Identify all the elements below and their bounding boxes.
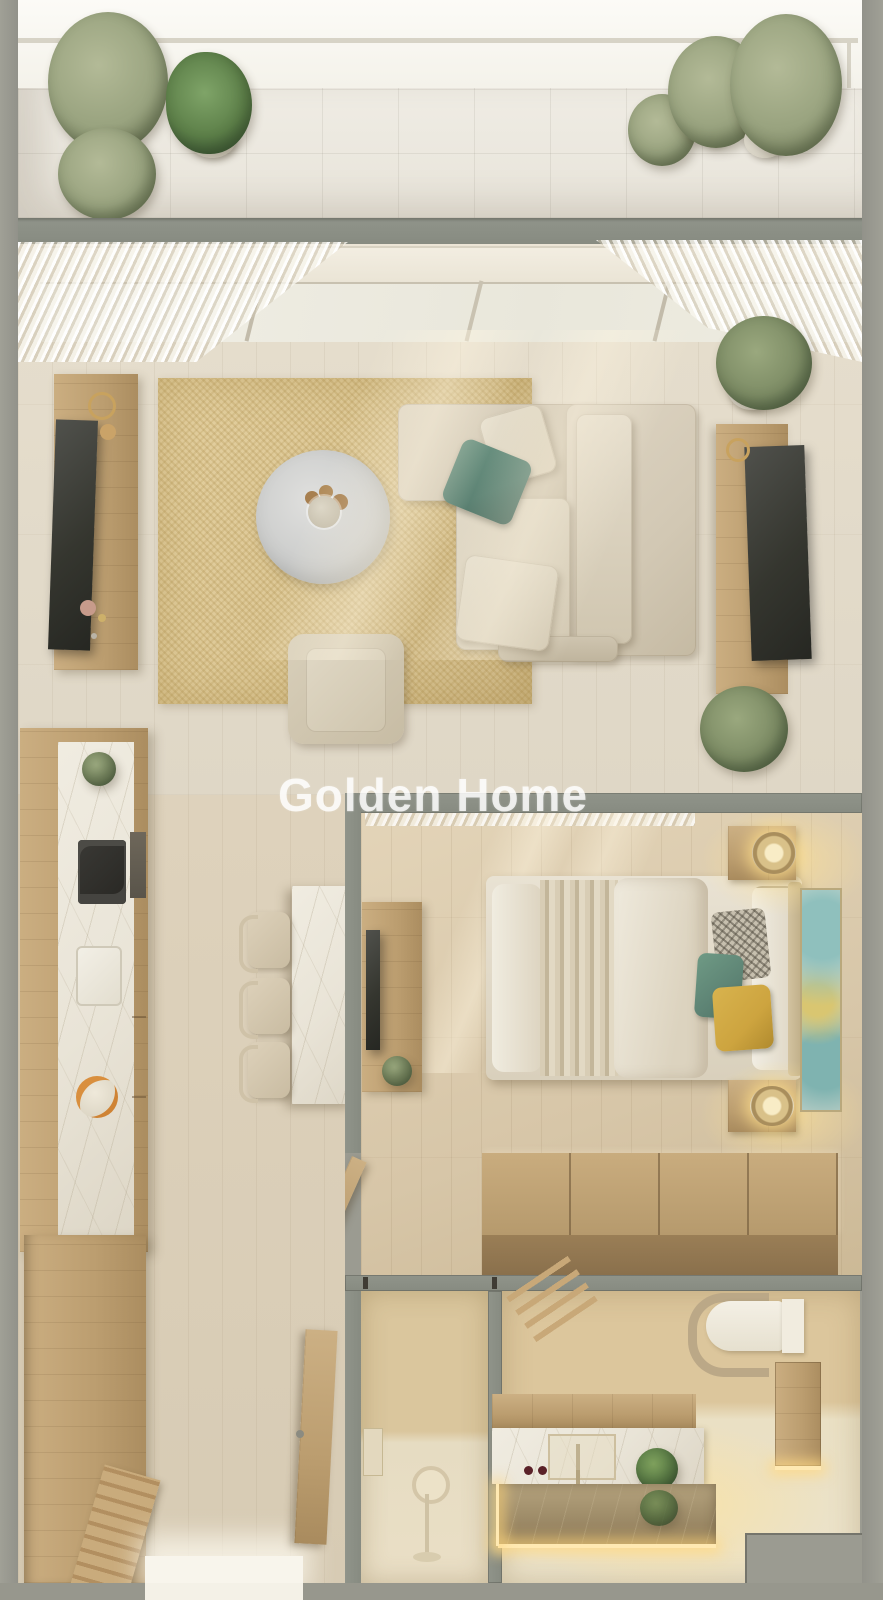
gold-decor [726, 438, 750, 462]
entry-threshold-light [145, 1583, 303, 1600]
watermark: Golden Home [278, 768, 588, 822]
door-jamb-mark [363, 1277, 368, 1289]
stool [248, 1042, 290, 1098]
led-strip [775, 1466, 821, 1470]
wall-art [800, 888, 842, 1112]
yellow-pillow [712, 984, 774, 1052]
sofa-seat-cushion [576, 414, 632, 644]
sofa-bottom-pillow [454, 554, 559, 652]
gold-decor [88, 392, 116, 420]
door-jamb-mark [492, 1277, 497, 1289]
led-strip [498, 1544, 716, 1548]
kitchen-herb-icon [82, 752, 116, 786]
bed-duvet [614, 878, 708, 1078]
vanity-knob [524, 1466, 533, 1475]
nightstand-lamp [750, 1086, 794, 1126]
bed-throw-folds [540, 880, 618, 1076]
shower-shelf [363, 1428, 383, 1476]
storage-chest-top [482, 1153, 838, 1235]
terrace-snake-plant-icon [166, 52, 252, 154]
faucet-icon [576, 1444, 580, 1470]
shower-stem [425, 1494, 429, 1556]
led-strip [496, 1484, 499, 1546]
vanity-upper-wood [492, 1394, 696, 1428]
floor-plan: Golden Home [0, 0, 883, 1600]
outer-wall-right [862, 0, 883, 1600]
bathroom-front-wall [345, 1275, 862, 1291]
stool [248, 912, 290, 968]
vase [308, 496, 340, 528]
living-plant-icon [700, 686, 788, 772]
console-plant-icon [382, 1056, 412, 1086]
living-plant-icon [716, 316, 812, 410]
bedroom-side-wall [345, 793, 361, 1153]
toilet-tank [782, 1299, 804, 1353]
sink-recess [548, 1434, 616, 1480]
oven-appliance [130, 832, 146, 898]
terrace-fluffy-plant-icon [730, 14, 842, 156]
kitchen-sink [76, 946, 122, 1006]
cooktop [78, 840, 126, 904]
storage-chest-front [482, 1235, 838, 1275]
outer-wall-bottom [0, 1583, 883, 1600]
armchair-cushion [306, 648, 386, 732]
nightstand-lamp [752, 832, 796, 874]
stool [248, 978, 290, 1034]
drawer-seam [132, 1016, 146, 1018]
terrace-plant-icon [58, 128, 156, 220]
shower-head-icon [412, 1466, 450, 1504]
fruit-bowl [76, 1076, 118, 1118]
bedroom-tv [366, 930, 380, 1050]
decor-items [80, 600, 96, 616]
mirror-reflection [498, 1484, 716, 1544]
door-handle [296, 1430, 304, 1438]
bathroom-cabinet [775, 1362, 821, 1466]
shower-base [413, 1552, 441, 1562]
plant-reflection-icon [640, 1490, 678, 1526]
bed-foot-cushion [492, 884, 542, 1072]
shower-side-wall [345, 1291, 361, 1600]
drawer-seam [132, 1096, 146, 1098]
tv-right [744, 445, 811, 661]
toilet-bowl [706, 1301, 784, 1351]
outer-wall-left [0, 0, 18, 1600]
tv-left [48, 419, 98, 650]
